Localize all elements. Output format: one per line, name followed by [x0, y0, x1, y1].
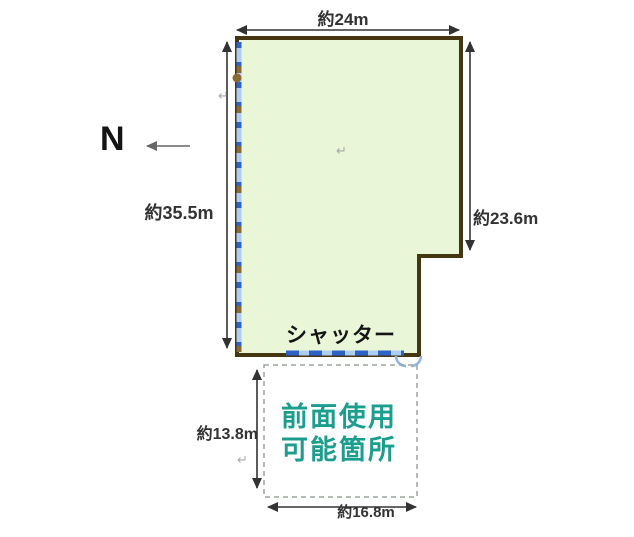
- return-mark-icon: ↵: [218, 88, 229, 104]
- shutter-label: シャッター: [271, 324, 411, 347]
- dimension-label-right-height: 約23.6m: [473, 210, 538, 229]
- return-mark-icon: ↵: [237, 452, 248, 468]
- site-plan-diagram: 約24m 約35.5m 約23.6m 約13.8m 約16.8m N シャッター…: [0, 0, 634, 537]
- dimension-label-top-width: 約24m: [293, 11, 393, 30]
- front-usable-area-label-line2: 可能箇所: [281, 434, 421, 467]
- north-indicator: N: [100, 121, 126, 158]
- parcel-outline: [237, 38, 461, 355]
- dimension-label-front-height: 約13.8m: [190, 426, 258, 444]
- front-usable-area-label-line1: 前面使用: [281, 401, 421, 434]
- front-usable-area-label: 前面使用 可能箇所: [281, 401, 421, 467]
- dimension-label-left-height: 約35.5m: [140, 204, 218, 224]
- edge-marker-icon: [233, 74, 242, 83]
- dimension-label-front-width: 約16.8m: [326, 505, 406, 522]
- return-mark-icon: ↵: [336, 143, 347, 159]
